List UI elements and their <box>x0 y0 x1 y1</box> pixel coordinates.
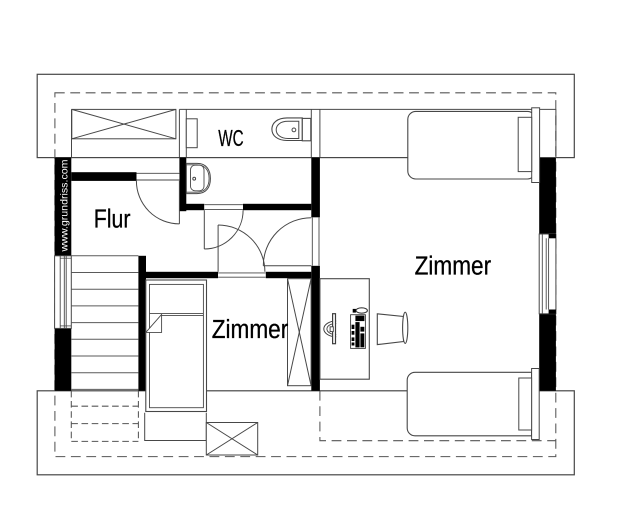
svg-text:Zimmer: Zimmer <box>415 253 492 281</box>
svg-text:www.grundriss.com: www.grundriss.com <box>59 160 70 253</box>
svg-text:Zimmer: Zimmer <box>212 316 289 344</box>
svg-text:Flur: Flur <box>94 206 131 234</box>
svg-text:WC: WC <box>218 125 243 151</box>
